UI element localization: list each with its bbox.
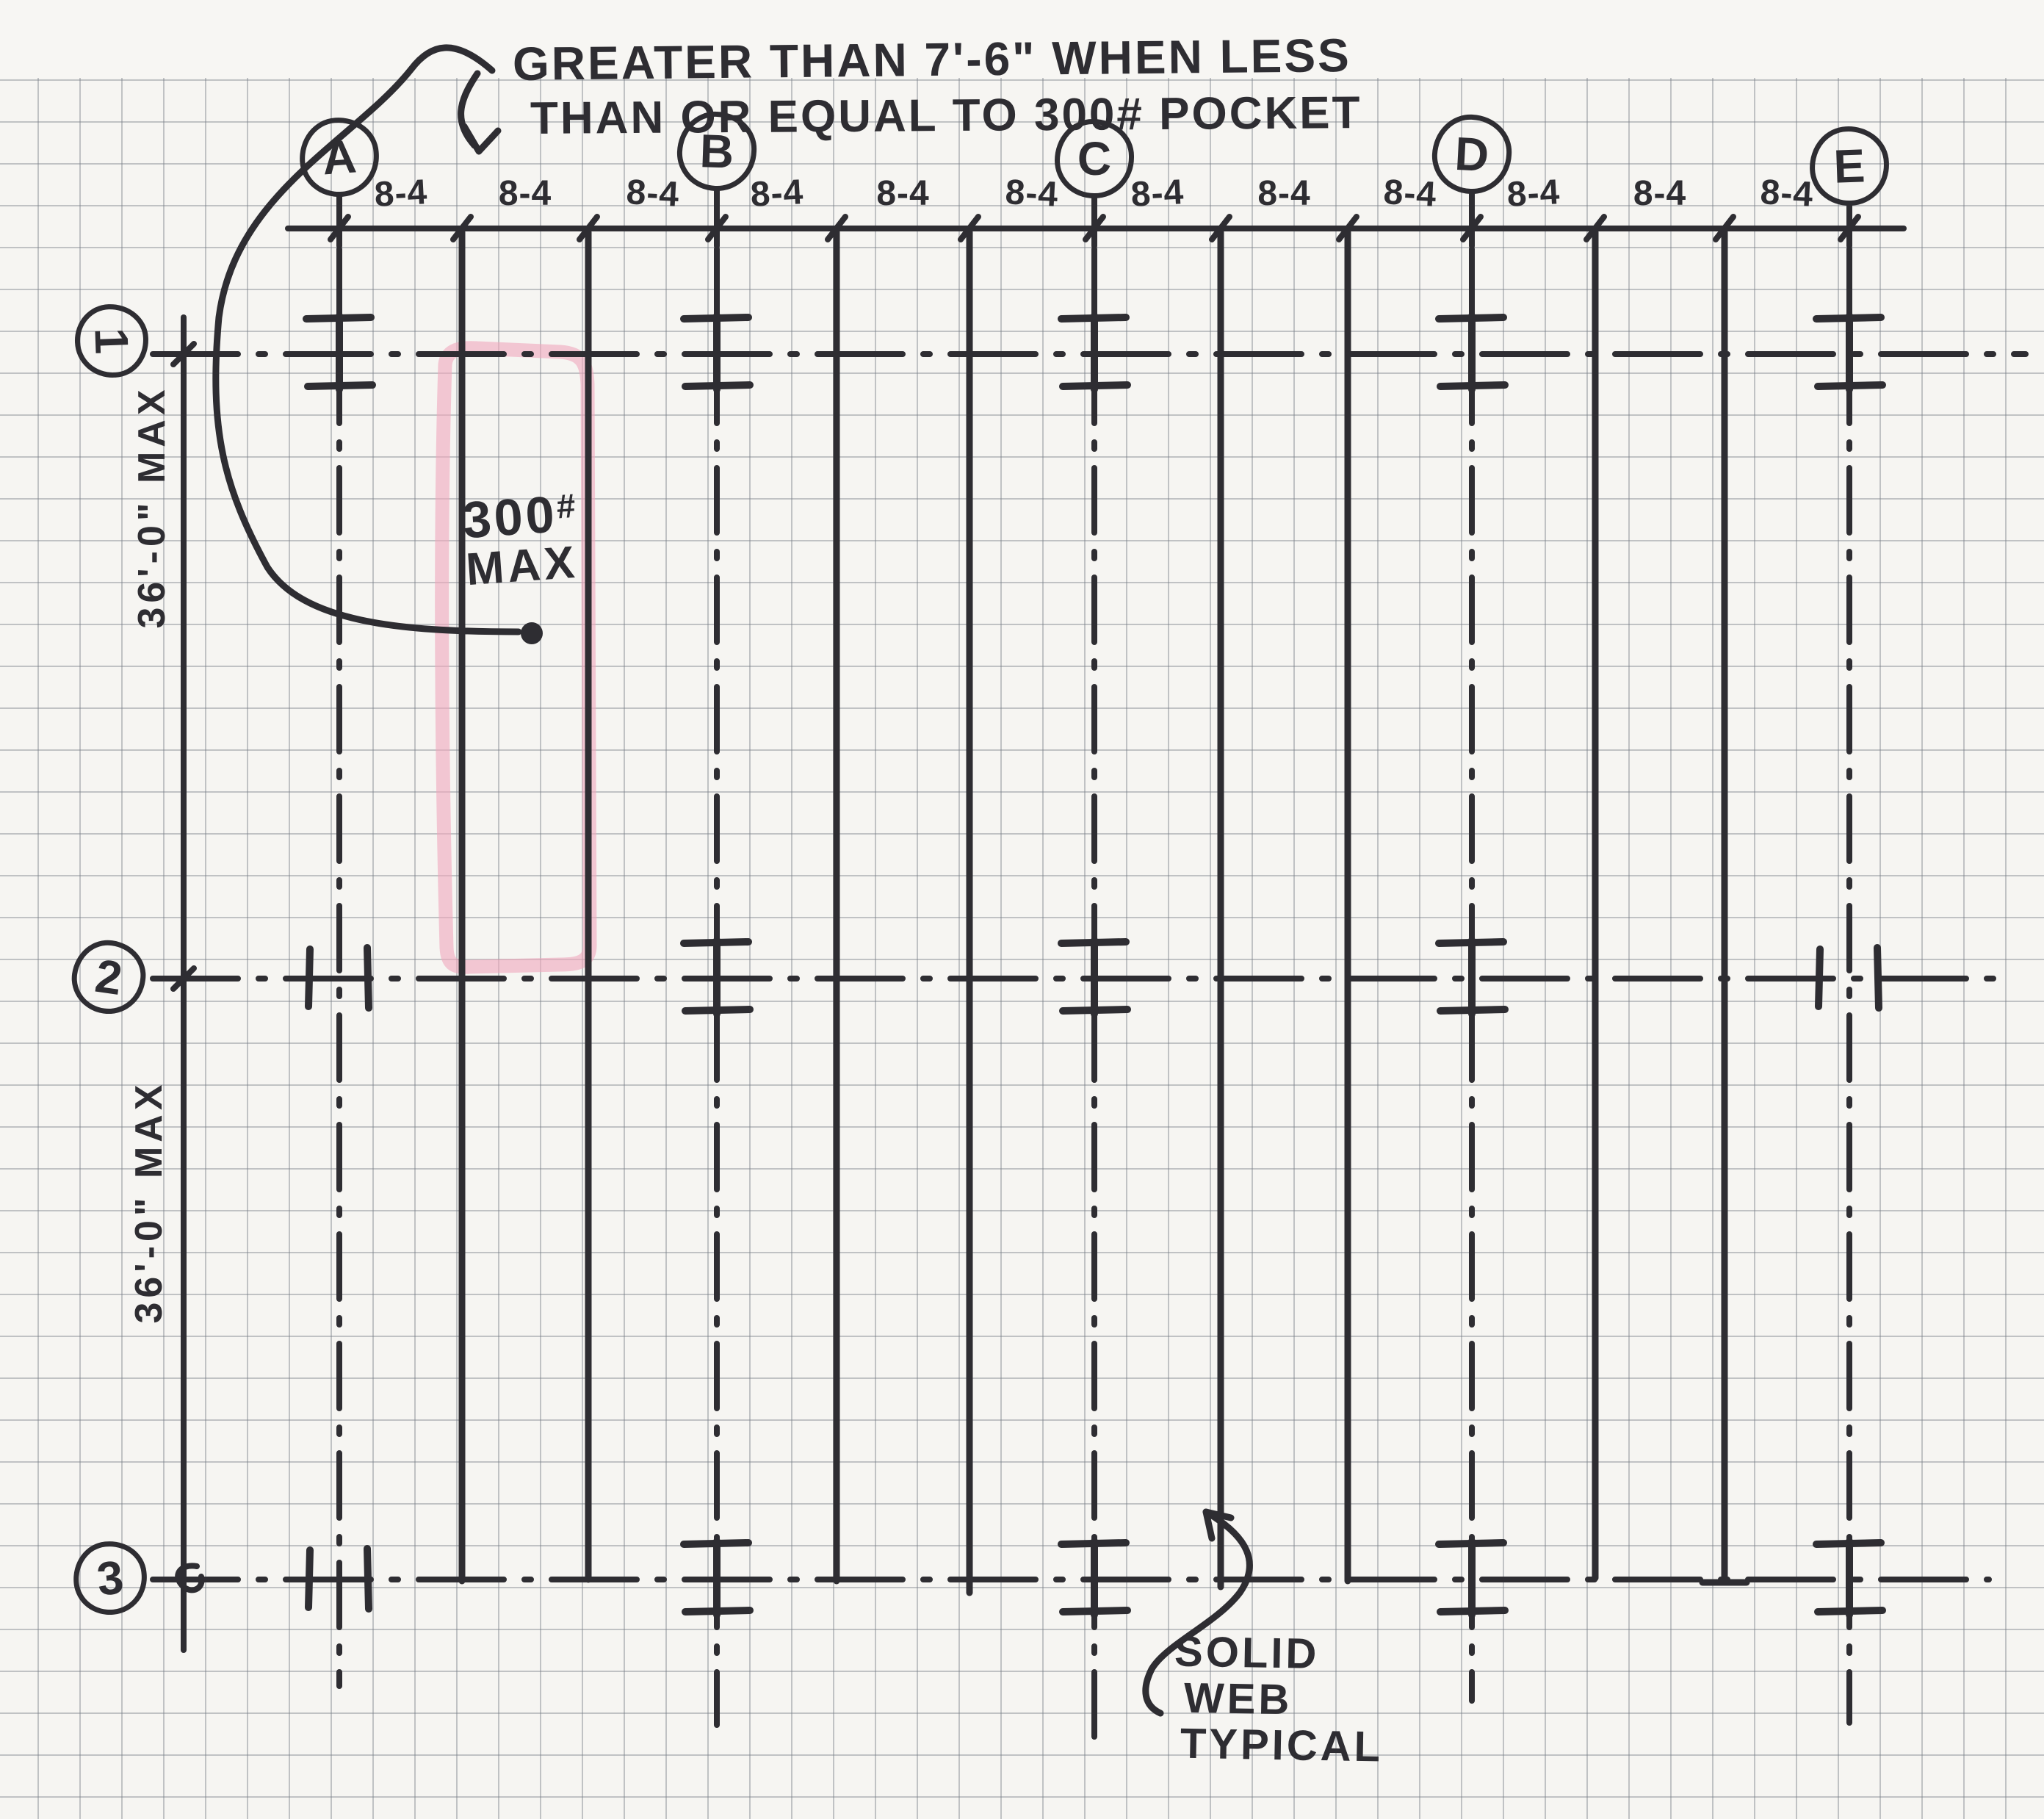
spacing-label: 8-4 — [1004, 172, 1059, 215]
column-symbol-cap — [308, 949, 310, 1006]
spacing-label: 8-4 — [876, 173, 929, 214]
grid-bubble-C: C — [1055, 119, 1134, 198]
pocket-depth-note-line2: THAN OR EQUAL TO 300# POCKET — [530, 87, 1362, 145]
pocket-max-label: MAX — [464, 539, 580, 594]
spacing-label: 8-4 — [625, 172, 680, 215]
spacing-label: 8-4 — [1506, 172, 1561, 215]
spacing-label: 8-4 — [499, 173, 552, 214]
note-down-arrowhead — [464, 126, 498, 151]
spacing-label: 8-4 — [1633, 173, 1686, 214]
spacing-label: 8-4 — [1130, 172, 1185, 215]
spacing-label: 8-4 — [1382, 172, 1437, 215]
spacing-label: 8-4 — [373, 172, 428, 215]
pocket-max-callout: 300# MAX — [461, 487, 580, 594]
drawing-sheet: GREATER THAN 7'-6" WHEN LESS THAN OR EQU… — [0, 0, 2044, 1819]
column-symbol-cap — [1819, 949, 1820, 1006]
solid-web-note: SOLID WEB TYPICAL — [1172, 1629, 1384, 1771]
solid-web-note-line1: SOLID — [1174, 1629, 1385, 1679]
solid-web-note-line3: TYPICAL — [1180, 1721, 1383, 1771]
spacing-label: 8-4 — [1257, 173, 1310, 214]
row-span-dimension: 36'-0" MAX — [130, 385, 174, 628]
pound-sign: # — [555, 486, 577, 526]
column-symbol-cap — [1877, 948, 1879, 1008]
pocket-depth-note-line1: GREATER THAN 7'-6" WHEN LESS — [513, 28, 1351, 91]
row-span-dimension: 36'-0" MAX — [127, 1080, 171, 1323]
column-symbol-cap — [308, 1550, 310, 1607]
solid-web-note-line2: WEB — [1183, 1675, 1384, 1724]
column-symbol-cap — [367, 1549, 369, 1609]
leader-end-dot — [521, 622, 543, 644]
spacing-label: 8-4 — [1759, 172, 1814, 215]
spacing-label: 8-4 — [749, 172, 804, 215]
ink-layer — [0, 0, 2044, 1819]
column-symbol-cap — [367, 948, 369, 1008]
